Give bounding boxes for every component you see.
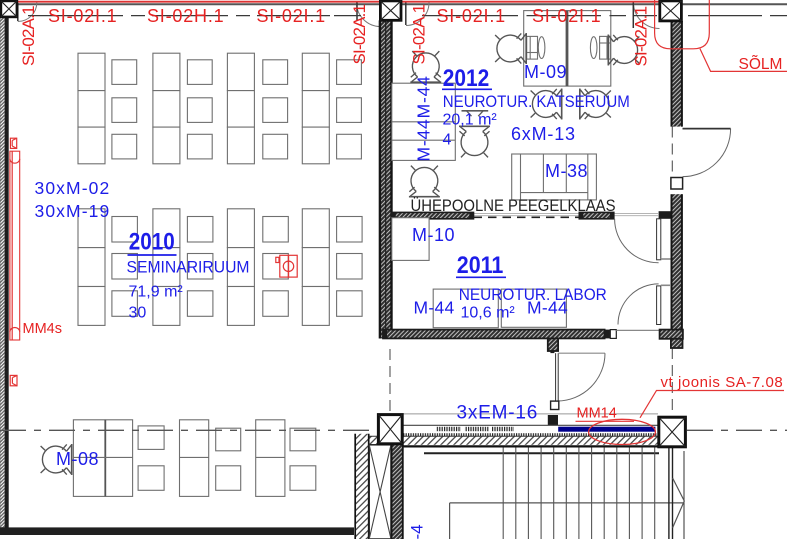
svg-text:M-10: M-10 bbox=[412, 225, 455, 245]
svg-text:2010: 2010 bbox=[129, 229, 175, 256]
svg-text:ÜHEPOOLNE PEEGELKLAAS: ÜHEPOOLNE PEEGELKLAAS bbox=[411, 197, 616, 215]
svg-text:6xM-13: 6xM-13 bbox=[511, 124, 576, 144]
svg-text:SI-02I.1: SI-02I.1 bbox=[48, 6, 117, 26]
svg-text:SÕLM 2: SÕLM 2 bbox=[739, 56, 787, 73]
svg-text:SI-02I.1: SI-02I.1 bbox=[257, 6, 326, 26]
svg-text:MM4s: MM4s bbox=[23, 321, 62, 337]
svg-text:SI-02A.1: SI-02A.1 bbox=[350, 4, 369, 64]
svg-text:vt joonis SA-7.08: vt joonis SA-7.08 bbox=[661, 374, 784, 391]
svg-text:2011: 2011 bbox=[457, 252, 504, 279]
svg-text:SI-02I.1: SI-02I.1 bbox=[532, 6, 601, 26]
svg-text:M-38: M-38 bbox=[545, 161, 588, 181]
svg-text:SI-02I.1: SI-02I.1 bbox=[437, 6, 506, 26]
svg-text:M-09: M-09 bbox=[524, 62, 567, 82]
svg-text:NEUROTUR. LABOR: NEUROTUR. LABOR bbox=[459, 286, 607, 304]
svg-text:4: 4 bbox=[443, 132, 452, 149]
svg-text:30xM-19: 30xM-19 bbox=[35, 201, 111, 221]
svg-text:M-08: M-08 bbox=[56, 449, 99, 469]
svg-text:SI-02H.1: SI-02H.1 bbox=[147, 6, 224, 26]
svg-text:20,1 m²: 20,1 m² bbox=[443, 112, 498, 129]
svg-text:SI-02A.1: SI-02A.1 bbox=[19, 6, 38, 66]
svg-text:30xM-02: 30xM-02 bbox=[35, 178, 111, 198]
svg-text:71,9 m²: 71,9 m² bbox=[129, 284, 184, 301]
svg-text:-4: -4 bbox=[408, 524, 427, 539]
svg-text:SEMINARIRUUM: SEMINARIRUUM bbox=[127, 258, 250, 277]
svg-text:MM14: MM14 bbox=[577, 406, 617, 422]
svg-text:3xEM-16: 3xEM-16 bbox=[457, 403, 539, 424]
svg-text:10,6 m²: 10,6 m² bbox=[461, 304, 516, 321]
svg-text:M-44: M-44 bbox=[414, 297, 455, 317]
svg-text:30: 30 bbox=[129, 305, 147, 322]
svg-text:SI-02A.1: SI-02A.1 bbox=[410, 4, 429, 64]
svg-text:2012: 2012 bbox=[443, 65, 490, 92]
svg-text:M-44M-44: M-44M-44 bbox=[413, 75, 433, 161]
svg-text:SI-02A.1: SI-02A.1 bbox=[632, 6, 651, 66]
svg-text:NEUROTUR. KATSERUUM: NEUROTUR. KATSERUUM bbox=[443, 93, 630, 111]
